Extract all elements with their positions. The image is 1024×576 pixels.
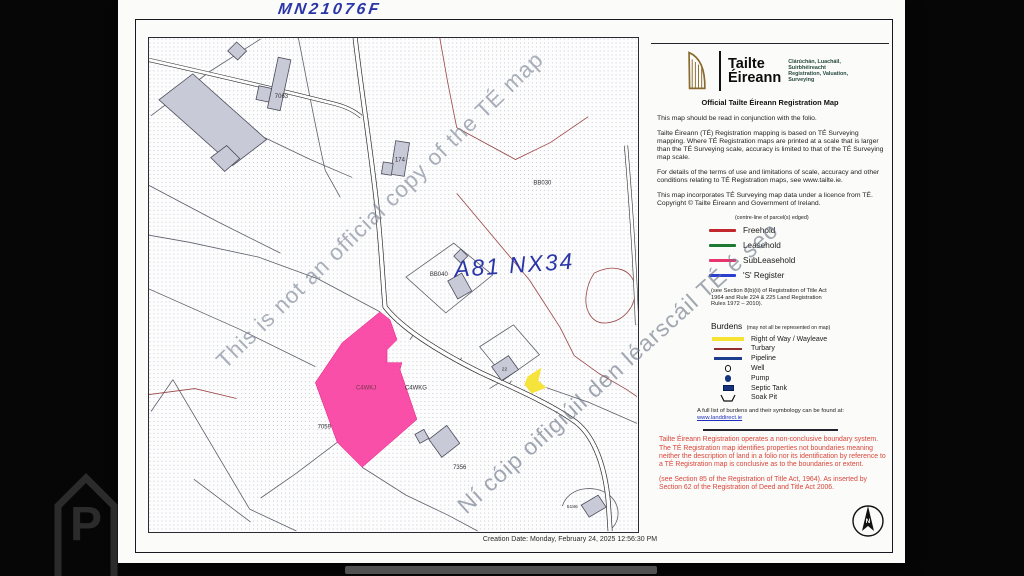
boundary-warning: Tailte Éireann Registration operates a n…: [659, 436, 891, 492]
north-arrow: N: [850, 501, 886, 541]
warning-paragraph: (see Section 85 of the Registration of T…: [659, 476, 891, 493]
info-panel: Tailte Éireann Clárúchán, Luacháil, Suir…: [651, 37, 889, 553]
legend-item-leasehold: Leasehold: [709, 238, 889, 253]
plot-label: BB030: [533, 180, 552, 186]
brand-line-2: Éireann: [728, 71, 781, 86]
burdens-title-row: Burdens (may not all be represented on m…: [711, 316, 889, 334]
document-title: Official Tailte Éireann Registration Map: [651, 98, 889, 107]
table-edge-reflection: [345, 566, 657, 574]
septic-tank-symbol: [723, 385, 734, 391]
subleasehold-line-swatch: [709, 259, 736, 262]
brand-name: Tailte Éireann: [728, 57, 781, 86]
burden-item-well: Well: [711, 364, 889, 374]
warning-paragraph: Tailte Éireann Registration operates a n…: [659, 436, 891, 469]
plot-label: 7356: [453, 465, 467, 471]
plot-label: 7063: [275, 94, 289, 100]
scanned-document: MN21076F: [118, 0, 905, 563]
tailte-eireann-logo: Tailte Éireann Clárúchán, Luacháil, Suir…: [685, 51, 889, 91]
burdens-legend: Burdens (may not all be represented on m…: [711, 316, 889, 421]
tenure-legend: (centre-line of parcel(s) edged) Freehol…: [709, 215, 889, 308]
photo-watermark-logo: P: [48, 462, 124, 576]
plot-label: 7059: [318, 424, 332, 430]
legend-heading: (centre-line of parcel(s) edged): [735, 215, 889, 221]
legend-item-s-register: 'S' Register: [709, 268, 889, 283]
plot-label: 174: [395, 158, 406, 164]
note-paragraph: This map should be read in conjunction w…: [657, 115, 887, 123]
burdens-footnote: A full list of burdens and their symbolo…: [697, 408, 862, 422]
burden-item-pump: Pump: [711, 373, 889, 383]
warning-divider: [703, 429, 838, 431]
burden-item-right-of-way: Right of Way / Wayleave: [711, 334, 889, 344]
burden-item-septic-tank: Septic Tank: [711, 383, 889, 393]
pipeline-symbol: [714, 357, 742, 360]
burden-item-turbary: Turbary: [711, 344, 889, 354]
plot-label: C4WKG: [405, 386, 427, 392]
freehold-line-swatch: [709, 229, 736, 232]
handwritten-folio-number: MN21076F: [277, 1, 383, 19]
note-paragraph: Tailte Éireann (TÉ) Registration mapping…: [657, 130, 887, 163]
plot-label: BB040: [430, 272, 449, 278]
burden-item-pipeline: Pipeline: [711, 354, 889, 364]
note-paragraph: This map incorporates TÉ Surveying map d…: [657, 192, 887, 208]
north-label: N: [866, 518, 871, 525]
brand-line-1: Tailte: [728, 57, 781, 72]
right-of-way-symbol: [712, 337, 744, 342]
usage-notes: This map should be read in conjunction w…: [657, 115, 887, 208]
well-symbol: [725, 365, 732, 372]
registration-map: 7063 174 BB030 BB040 C4WKJ C4WKG 7059 73…: [149, 38, 638, 532]
map-panel: 7063 174 BB030 BB040 C4WKJ C4WKG 7059 73…: [148, 37, 639, 533]
turbary-symbol: [714, 348, 742, 349]
plot-label: 22: [502, 367, 508, 373]
panel-top-divider: [651, 43, 889, 44]
legend-item-subleasehold: SubLeasehold: [709, 253, 889, 268]
soak-pit-symbol: [720, 394, 736, 402]
legend-footnote: (see Section 8(b)(ii) of Registration of…: [711, 288, 831, 308]
plot-label: 5186: [567, 504, 578, 510]
photo-watermark-letter: P: [70, 498, 102, 551]
s-register-line-swatch: [709, 274, 736, 277]
brand-tagline: Clárúchán, Luacháil, Suirbhéireacht Regi…: [788, 59, 848, 84]
burden-item-soak-pit: Soak Pit: [711, 393, 889, 403]
logo-divider: [719, 51, 721, 91]
landdirect-link[interactable]: www.landdirect.ie: [697, 415, 742, 421]
pump-symbol: [725, 375, 732, 382]
note-paragraph: For details of the terms of use and limi…: [657, 169, 887, 185]
harp-icon: [685, 51, 711, 91]
leasehold-line-swatch: [709, 244, 736, 247]
legend-item-freehold: Freehold: [709, 223, 889, 238]
plot-label: C4WKJ: [356, 386, 376, 392]
